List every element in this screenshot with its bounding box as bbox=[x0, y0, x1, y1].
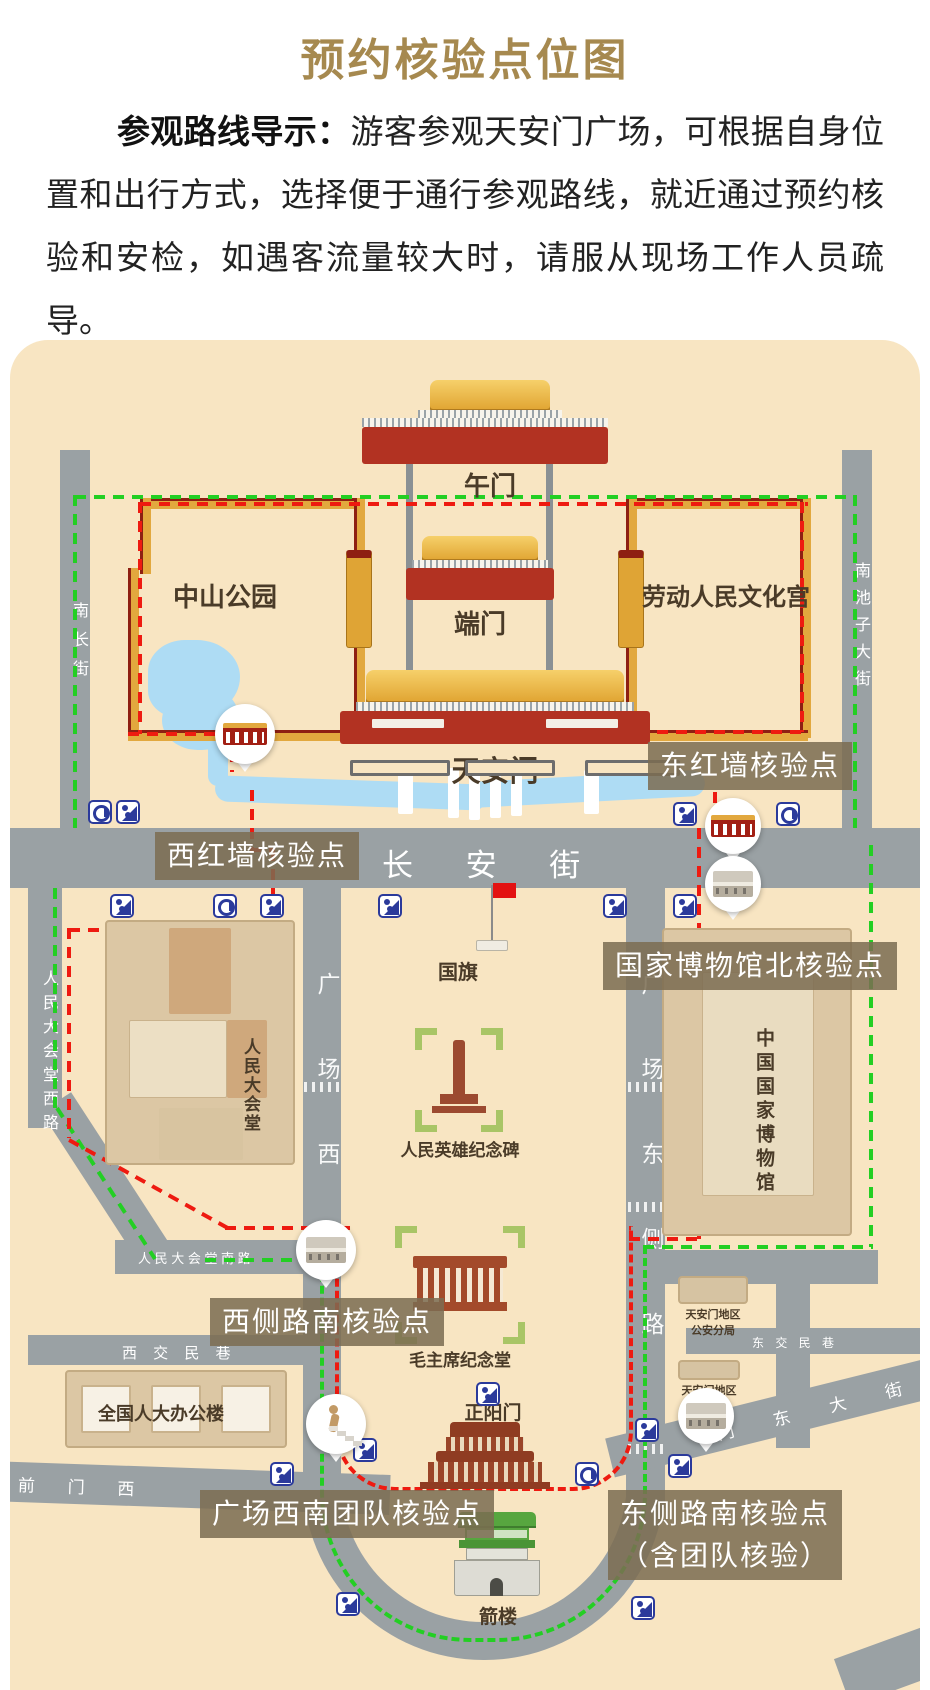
route-red bbox=[697, 828, 701, 944]
checkpoint-building-icon bbox=[713, 871, 753, 897]
monument-icon-base bbox=[440, 1094, 478, 1104]
underpass-icon bbox=[378, 894, 402, 918]
underpass-icon bbox=[476, 1382, 500, 1406]
stairs-person-icon bbox=[315, 1403, 357, 1445]
wumen-gate-roof bbox=[430, 380, 550, 412]
checkpoint-building-icon bbox=[306, 1237, 346, 1263]
route-green bbox=[869, 845, 873, 1247]
wumen-gate-eave bbox=[362, 418, 608, 427]
route-red bbox=[638, 730, 808, 734]
jianlou-roof2 bbox=[459, 1540, 535, 1548]
bracket-corner bbox=[415, 1028, 437, 1050]
underpass-icon bbox=[603, 894, 627, 918]
bracket-corner bbox=[481, 1110, 503, 1132]
zhengyangmen-roof bbox=[450, 1422, 520, 1437]
red-wall-icon bbox=[223, 723, 267, 745]
label-national-museum: 中国国家博物馆 bbox=[750, 1028, 777, 1196]
bracket-corner bbox=[503, 1226, 525, 1248]
route-green bbox=[53, 888, 57, 1110]
page-title: 预约核验点位图 bbox=[0, 24, 930, 88]
checkpoint-label-west-side-south: 西侧路南核验点 bbox=[210, 1298, 444, 1346]
npc-office-window bbox=[221, 1385, 271, 1433]
intro-paragraph: 参观路线导示：游客参观天安门广场，可根据自身位置和出行方式，选择便于通行参观路线… bbox=[46, 100, 884, 352]
map-canvas: 前 门 西 门 东 大 街 长 安 街 南长街 南池子大街 人民大会堂西路 广场… bbox=[10, 340, 920, 1690]
checkpoint-label-east-line1: 东侧路南核验点 bbox=[620, 1493, 830, 1535]
bracket-corner bbox=[481, 1028, 503, 1050]
great-hall-building bbox=[105, 920, 295, 1165]
zhengyangmen-roof2 bbox=[436, 1451, 534, 1462]
label-jianlou: 箭楼 bbox=[474, 1602, 522, 1629]
street-nanchizi: 南池子大街 bbox=[848, 562, 872, 697]
pin-museum-north-checkpoint bbox=[705, 856, 761, 933]
wumen-gate-body bbox=[362, 427, 608, 464]
zhengyangmen-tier2 bbox=[428, 1462, 542, 1482]
checkpoint-label-museum-north: 国家博物馆北核验点 bbox=[603, 942, 897, 990]
great-hall-inner bbox=[169, 928, 231, 1014]
label-police: 天安门地区 公安分局 bbox=[660, 1306, 766, 1338]
pin-west-side-south-checkpoint bbox=[296, 1220, 356, 1301]
subway-icon bbox=[213, 894, 237, 918]
mao-hall-columns bbox=[417, 1268, 503, 1302]
underpass-icon bbox=[631, 1596, 655, 1620]
label-police-line2: 公安分局 bbox=[660, 1322, 766, 1338]
great-hall-inner bbox=[159, 1108, 243, 1160]
label-national-flag: 国旗 bbox=[438, 956, 478, 985]
label-duanmen: 端门 bbox=[430, 604, 530, 641]
bracket-corner bbox=[415, 1110, 437, 1132]
duanmen-gate-eave bbox=[412, 560, 548, 568]
underpass-icon bbox=[260, 894, 284, 918]
underpass-icon bbox=[270, 1462, 294, 1486]
checkpoint-label-east-side-south: 东侧路南核验点 （含团队核验） bbox=[608, 1490, 842, 1580]
duanmen-gate-body bbox=[406, 568, 554, 600]
label-monument: 人民英雄纪念碑 bbox=[398, 1136, 522, 1161]
monument-icon bbox=[453, 1040, 465, 1094]
bridge bbox=[584, 770, 599, 814]
label-cultural-palace: 劳动人民文化宫 bbox=[642, 577, 810, 612]
checkpoint-label-west-wall: 西红墙核验点 bbox=[155, 832, 359, 880]
wall-turret bbox=[346, 550, 372, 648]
underpass-icon bbox=[635, 1418, 659, 1442]
bridge bbox=[398, 770, 413, 814]
page: 预约核验点位图 参观路线导示：游客参观天安门广场，可根据自身位置和出行方式，选择… bbox=[0, 0, 930, 1690]
subway-icon bbox=[575, 1462, 599, 1486]
wall-turret bbox=[618, 550, 644, 648]
tiananmen-plaque bbox=[372, 719, 444, 728]
street-changan: 长 安 街 bbox=[382, 840, 602, 885]
flag-icon bbox=[493, 883, 516, 898]
label-great-hall: 人民大会堂 bbox=[238, 1038, 263, 1133]
tiananmen-gate-eave bbox=[356, 702, 634, 711]
checkpoint-label-east-wall: 东红墙核验点 bbox=[648, 742, 852, 790]
subway-icon bbox=[776, 802, 800, 826]
route-red bbox=[800, 502, 804, 732]
pin-west-wall-checkpoint bbox=[215, 704, 275, 785]
underpass-icon bbox=[673, 802, 697, 826]
mao-hall-roof bbox=[413, 1256, 507, 1268]
label-police-line1: 天安门地区 bbox=[660, 1306, 766, 1322]
underpass-icon bbox=[110, 894, 134, 918]
label-wumen: 午门 bbox=[440, 466, 540, 503]
committee-building bbox=[678, 1360, 740, 1380]
underpass-icon bbox=[116, 800, 140, 824]
wumen-gate-eave bbox=[418, 410, 562, 418]
pin-square-sw-checkpoint bbox=[306, 1394, 366, 1475]
tiananmen-gate-roof bbox=[366, 670, 624, 704]
red-wall-icon bbox=[711, 815, 755, 837]
great-hall-inner bbox=[129, 1020, 227, 1098]
route-green bbox=[853, 495, 857, 828]
route-red bbox=[629, 1237, 699, 1241]
label-zhongshan-park: 中山公园 bbox=[173, 577, 277, 614]
intro-lead: 参观路线导示： bbox=[117, 113, 351, 150]
bracket-corner bbox=[395, 1226, 417, 1248]
road-corner-southeast bbox=[834, 1608, 920, 1690]
jianlou-body bbox=[466, 1548, 528, 1560]
reviewing-stand bbox=[350, 760, 450, 776]
reviewing-stand bbox=[465, 760, 555, 776]
underpass-icon bbox=[673, 894, 697, 918]
street-square-west: 广场西 bbox=[310, 972, 344, 1227]
street-qianmen-west: 前 门 西 bbox=[18, 1471, 149, 1501]
jianlou-arch bbox=[490, 1578, 503, 1596]
duanmen-gate-roof bbox=[422, 536, 538, 562]
checkpoint-label-east-line2: （含团队核验） bbox=[620, 1535, 830, 1577]
subway-icon bbox=[88, 800, 112, 824]
zhengyangmen-tier1 bbox=[446, 1437, 524, 1451]
label-npc-office: 全国人大办公楼 bbox=[98, 1400, 224, 1426]
checkpoint-building-icon bbox=[686, 1403, 726, 1429]
route-red bbox=[67, 928, 71, 1138]
underpass-icon bbox=[336, 1592, 360, 1616]
police-building bbox=[678, 1276, 748, 1304]
route-green bbox=[73, 495, 77, 828]
bracket-corner bbox=[503, 1322, 525, 1344]
route-green bbox=[643, 1245, 873, 1249]
street-nanchang: 南长街 bbox=[66, 602, 90, 689]
label-mao-hall: 毛主席纪念堂 bbox=[408, 1346, 512, 1371]
route-red bbox=[138, 502, 142, 734]
monument-icon-pedestal bbox=[432, 1106, 486, 1113]
flag-base bbox=[476, 940, 508, 951]
zhengyangmen-base bbox=[420, 1482, 550, 1489]
tiananmen-plaque bbox=[546, 719, 618, 728]
checkpoint-label-square-sw: 广场西南团队核验点 bbox=[200, 1490, 494, 1538]
pin-east-side-south-checkpoint bbox=[678, 1388, 734, 1465]
